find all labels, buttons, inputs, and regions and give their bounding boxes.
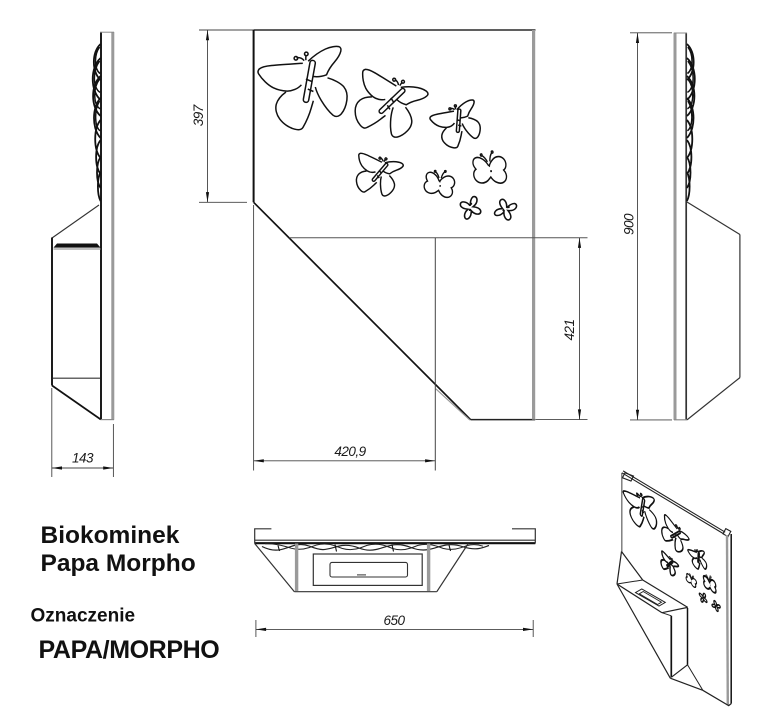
- svg-text:PAPA/MORPHO: PAPA/MORPHO: [39, 636, 220, 664]
- svg-text:650: 650: [383, 613, 405, 628]
- svg-text:Papa Morpho: Papa Morpho: [41, 550, 196, 577]
- svg-text:900: 900: [622, 213, 637, 235]
- svg-text:420,9: 420,9: [334, 444, 366, 459]
- svg-text:421: 421: [562, 319, 577, 340]
- svg-text:397: 397: [191, 104, 206, 126]
- svg-text:Oznaczenie: Oznaczenie: [31, 606, 136, 627]
- svg-text:143: 143: [72, 451, 94, 466]
- svg-text:Biokominek: Biokominek: [41, 522, 180, 549]
